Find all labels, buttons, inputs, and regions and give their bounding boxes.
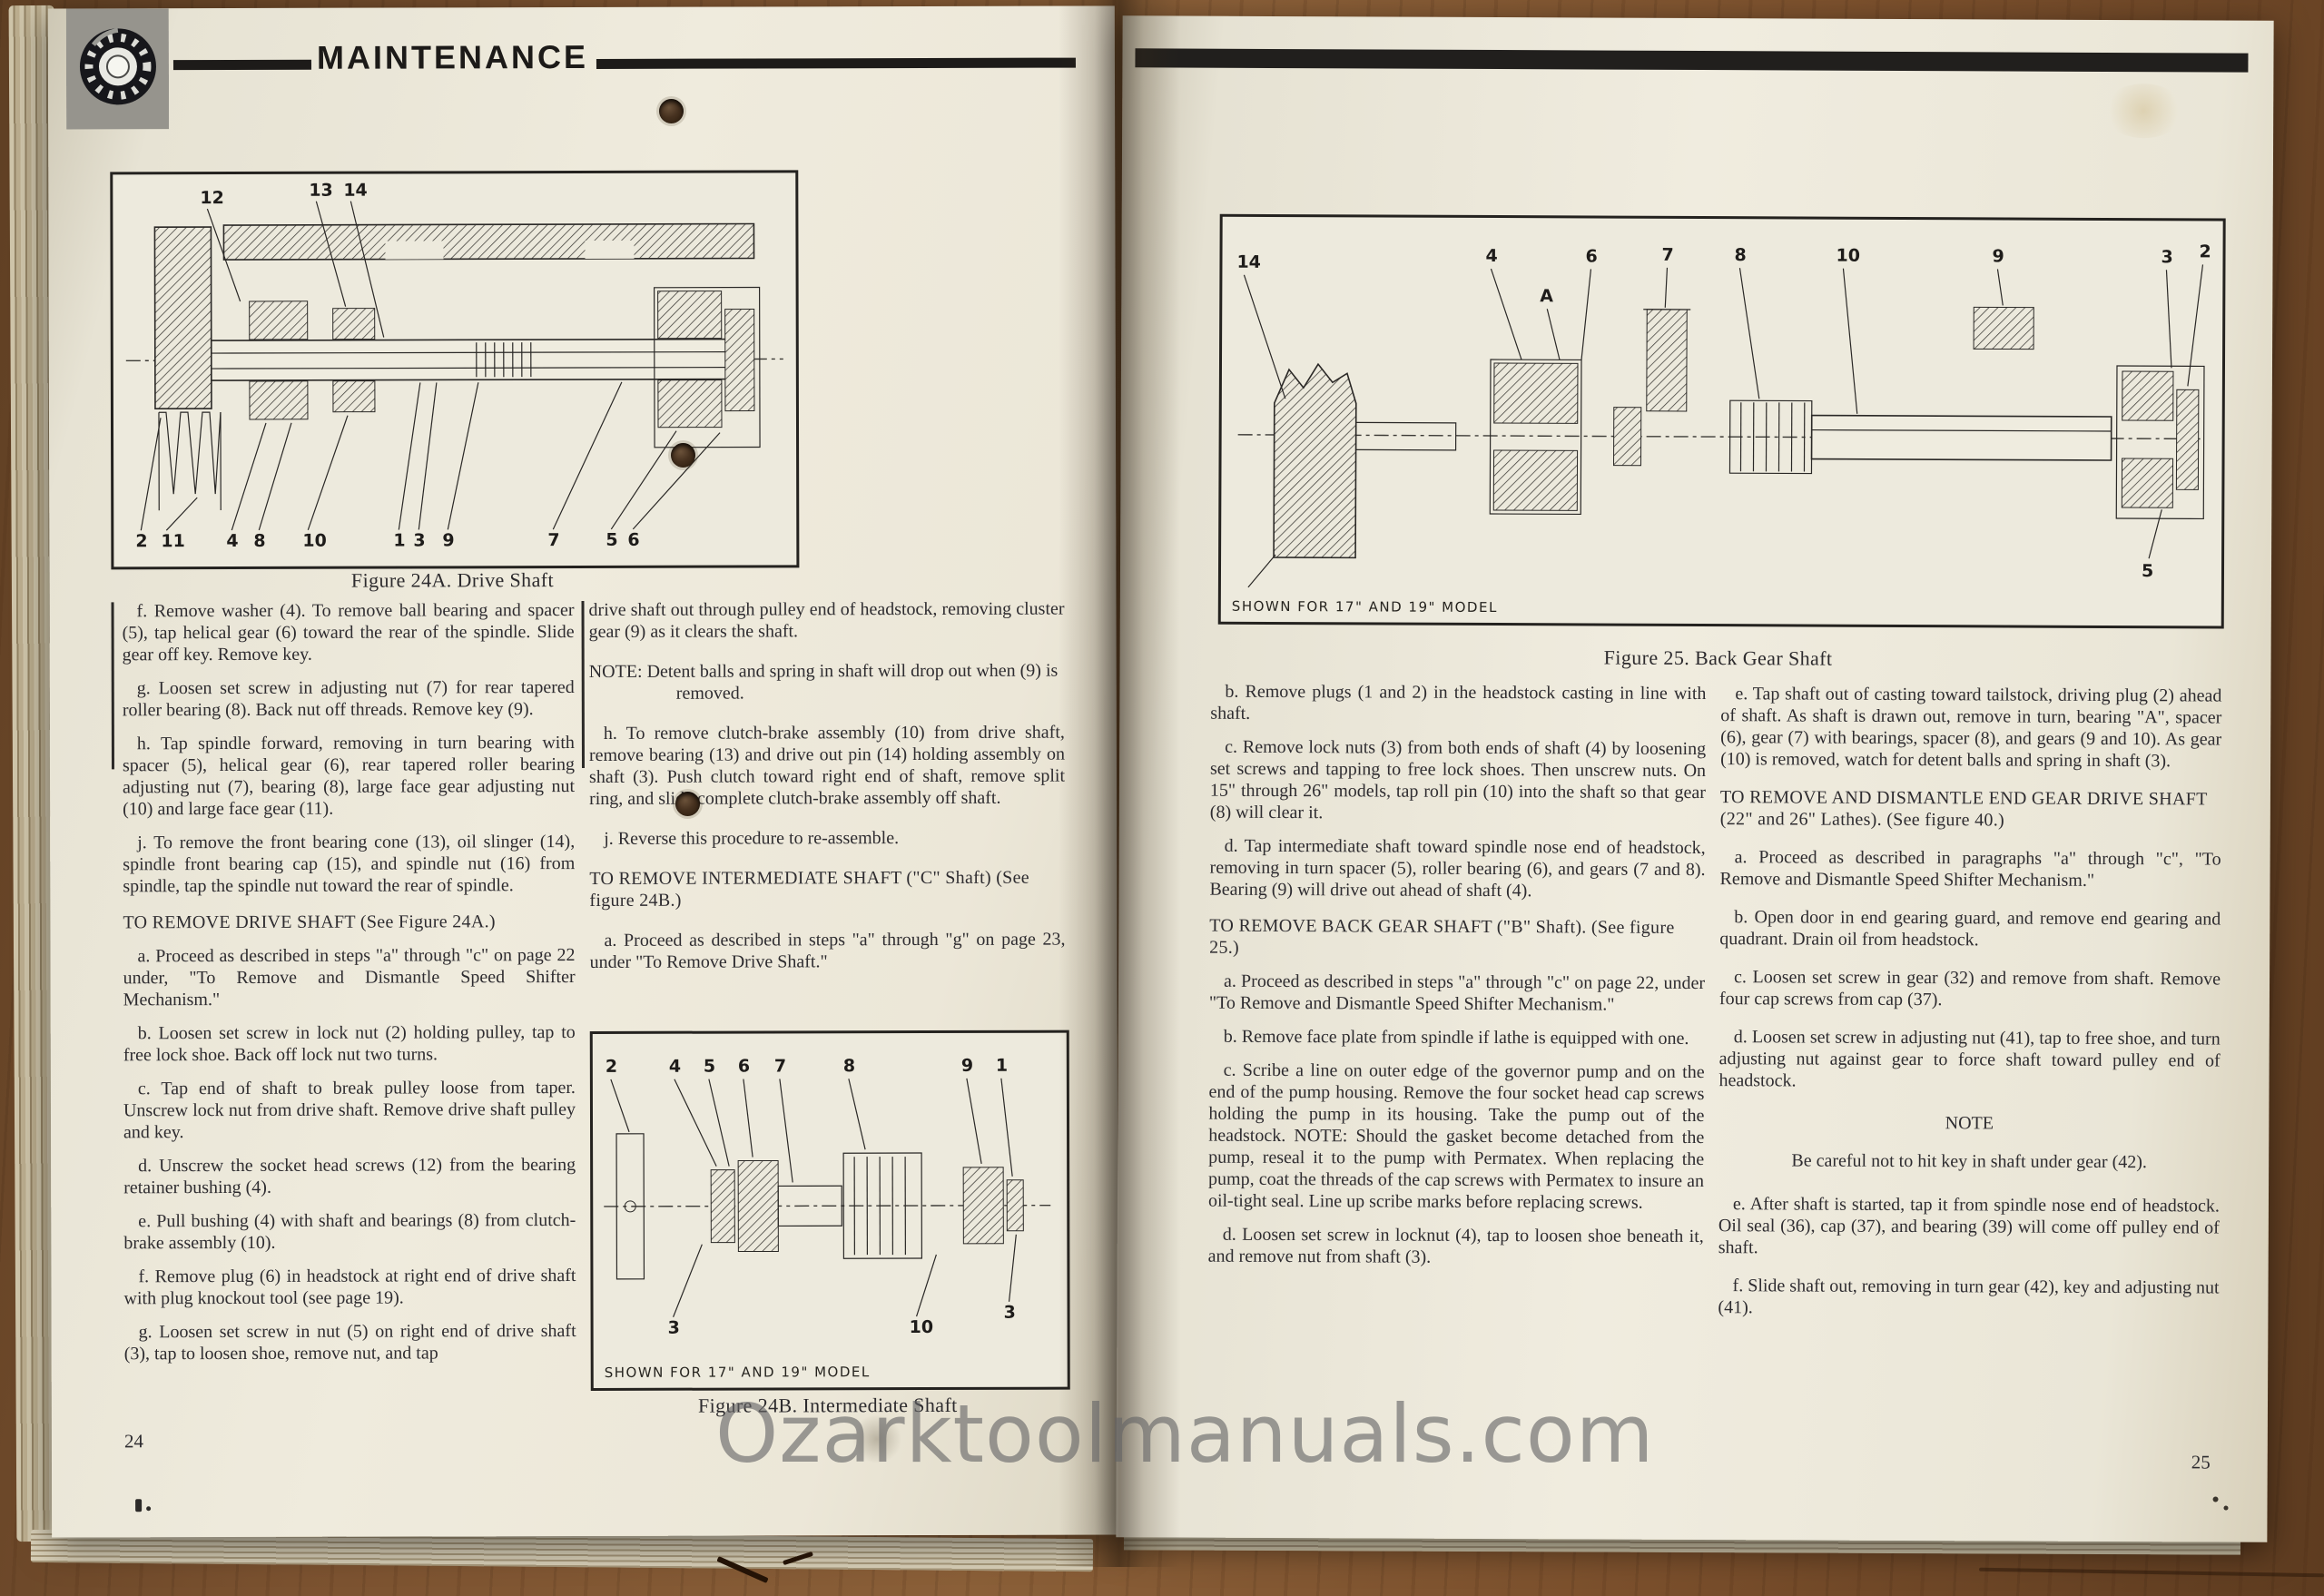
paragraph: e. After shaft is started, tap it from s… (1718, 1193, 2220, 1260)
fig24a-label: 14 (343, 181, 368, 201)
paragraph: g. Loosen set screw in adjusting nut (7)… (123, 676, 575, 721)
fig24b-label: 9 (961, 1056, 973, 1076)
paragraph: f. Remove plug (6) in headstock at right… (123, 1265, 576, 1309)
fig24b-label: 3 (1004, 1303, 1016, 1323)
fig24a-label: 10 (302, 531, 327, 551)
paragraph: f. Slide shaft out, removing in turn gea… (1718, 1275, 2219, 1320)
ink-speck (2223, 1506, 2228, 1511)
paragraph: c. Tap end of shaft to break pulley loos… (123, 1077, 576, 1143)
figure-25-caption: Figure 25. Back Gear Shaft (1218, 645, 2219, 673)
figure-24b-box: 2 4 5 6 7 8 9 1 3 10 3 SHOWN FOR 17" AND… (590, 1030, 1070, 1391)
fig24b-label: 4 (669, 1057, 681, 1077)
fig24a-label: 3 (413, 530, 425, 550)
figure-25-model-note: SHOWN FOR 17" AND 19" MODEL (1232, 598, 1498, 616)
paragraph: e. Pull bushing (4) with shaft and beari… (123, 1209, 576, 1254)
paragraph: b. Remove face plate from spindle if lat… (1209, 1026, 1705, 1049)
wood-groove (1979, 1568, 2324, 1578)
photo-of-open-manual: { "watermark": "Ozarktoolmanuals.com", "… (0, 0, 2324, 1596)
fig25-label: 6 (1585, 246, 1597, 266)
fig25-label: 3 (2161, 247, 2172, 267)
paragraph: h. To remove clutch-brake assembly (10) … (589, 722, 1065, 810)
change-bar-right (582, 601, 585, 768)
fig25-label: 14 (1236, 252, 1261, 272)
handwheel-logo (66, 8, 169, 129)
left-page-column-1: f. Remove washer (4). To remove ball bea… (123, 599, 576, 1376)
paragraph: e. Tap shaft out of casting toward tails… (1720, 683, 2221, 772)
section-heading: TO REMOVE AND DISMANTLE END GEAR DRIVE S… (1720, 786, 2221, 832)
fig25-label: 7 (1661, 245, 1673, 265)
note-paragraph: NOTE: Detent balls and spring in shaft w… (589, 660, 1065, 704)
fig24a-label: 11 (161, 531, 185, 551)
fig24b-label: 1 (996, 1056, 1008, 1076)
figure-24b-model-note: SHOWN FOR 17" AND 19" MODEL (605, 1364, 871, 1381)
fig25-label: 9 (1992, 246, 2004, 266)
page-section-title: MAINTENANCE (317, 38, 588, 77)
paragraph: d. Unscrew the socket head screws (12) f… (123, 1154, 576, 1198)
paragraph: g. Loosen set screw in nut (5) on right … (124, 1320, 576, 1364)
figure-24a-box: 12 13 14 2 11 4 8 10 1 3 9 7 5 6 (110, 170, 799, 569)
fig24a-label: 12 (200, 188, 224, 208)
note-body: Be careful not to hit key in shaft under… (1718, 1149, 2220, 1173)
paragraph: c. Scribe a line on outer edge of the go… (1208, 1059, 1705, 1214)
fig24a-label: 5 (606, 530, 617, 550)
paragraph: a. Proceed as described in steps "a" thr… (589, 929, 1065, 973)
right-page: 14 4 A 6 7 8 10 9 3 2 5 (1116, 15, 2273, 1542)
header-rule-left (173, 60, 311, 70)
fig24b-label: 3 (668, 1318, 680, 1338)
paragraph: a. Proceed as described in steps "a" thr… (1209, 970, 1705, 1016)
note-heading: NOTE (1718, 1111, 2220, 1135)
paragraph: j. Reverse this procedure to re-assemble… (589, 827, 1065, 850)
fig24a-label: 8 (253, 531, 265, 551)
section-heading: TO REMOVE INTERMEDIATE SHAFT ("C" Shaft)… (589, 867, 1065, 911)
right-page-column-1: b. Remove plugs (1 and 2) in the headsto… (1208, 681, 1707, 1281)
ink-dots (135, 1499, 142, 1512)
punch-hole-middle (671, 443, 695, 468)
figure-24a-caption: Figure 24A. Drive Shaft (111, 567, 793, 593)
paragraph: c. Loosen set screw in gear (32) and rem… (1719, 966, 2221, 1011)
fig25-label: 5 (2142, 561, 2153, 581)
paragraph: d. Tap intermediate shaft toward spindle… (1209, 835, 1705, 902)
figure-25-box: 14 4 A 6 7 8 10 9 3 2 5 (1218, 214, 2226, 629)
figure-24a-drawing: 12 13 14 2 11 4 8 10 1 3 9 7 5 6 (113, 172, 796, 563)
header-rule-right (596, 58, 1076, 69)
left-page-column-2: drive shaft out through pulley end of he… (589, 598, 1066, 991)
punch-hole-bottom (675, 792, 700, 816)
figure-24b-drawing: 2 4 5 6 7 8 9 1 3 10 3 (593, 1033, 1062, 1383)
ink-dot (146, 1506, 151, 1511)
fig24a-label: 13 (309, 181, 333, 201)
paragraph: d. Loosen set screw in adjusting nut (41… (1718, 1026, 2220, 1093)
punch-hole-top (659, 99, 684, 123)
paragraph: c. Remove lock nuts (3) from both ends o… (1210, 736, 1706, 825)
left-page: MAINTENANCE (48, 5, 1118, 1537)
fig24b-label: 2 (606, 1057, 617, 1077)
fig25-label: 2 (2199, 241, 2211, 261)
paragraph: b. Remove plugs (1 and 2) in the headsto… (1210, 681, 1706, 726)
ink-specks (2213, 1496, 2219, 1502)
left-page-number: 24 (124, 1430, 143, 1453)
fig24a-label: 2 (135, 531, 147, 551)
fig24a-label: 6 (627, 530, 639, 550)
fig24b-label: 8 (843, 1056, 855, 1076)
paragraph: a. Proceed as described in steps "a" thr… (123, 944, 575, 1010)
paragraph: j. To remove the front bearing cone (13)… (123, 831, 575, 897)
right-page-number: 25 (2191, 1451, 2211, 1473)
fig24b-label: 5 (704, 1057, 715, 1077)
paragraph: f. Remove washer (4). To remove ball bea… (123, 599, 575, 665)
fig25-label: 4 (1485, 246, 1497, 266)
paper-stain (2102, 84, 2184, 138)
watermark-text: Ozarktoolmanuals.com (715, 1387, 1655, 1481)
section-heading: TO REMOVE BACK GEAR SHAFT ("B" Shaft). (… (1209, 915, 1705, 961)
paragraph: h. Tap spindle forward, removing in turn… (123, 732, 575, 820)
fig24a-label: 7 (547, 530, 559, 550)
paragraph: d. Loosen set screw in locknut (4), tap … (1208, 1224, 1704, 1269)
fig25-label: 10 (1836, 246, 1860, 266)
fig25-label: 8 (1734, 245, 1746, 265)
fig24a-label: 4 (226, 531, 238, 551)
paragraph: drive shaft out through pulley end of he… (589, 598, 1065, 643)
fig24b-label: 7 (774, 1056, 786, 1076)
fig24a-label: 9 (442, 530, 454, 550)
fig24a-label: 1 (393, 531, 405, 551)
paragraph: b. Open door in end gearing guard, and r… (1719, 906, 2221, 951)
fig24b-label: 6 (738, 1057, 750, 1077)
section-heading: TO REMOVE DRIVE SHAFT (See Figure 24A.) (123, 911, 575, 933)
header-bar (1135, 48, 2248, 72)
paragraph: b. Loosen set screw in lock nut (2) hold… (123, 1021, 576, 1066)
right-page-column-2: e. Tap shaft out of casting toward tails… (1718, 683, 2221, 1336)
figure-25-drawing: 14 4 A 6 7 8 10 9 3 2 5 (1221, 217, 2218, 621)
change-bar-left (112, 602, 114, 769)
fig24b-label: 10 (910, 1317, 934, 1337)
paragraph: a. Proceed as described in paragraphs "a… (1719, 846, 2221, 892)
fig25-label: A (1540, 286, 1553, 306)
